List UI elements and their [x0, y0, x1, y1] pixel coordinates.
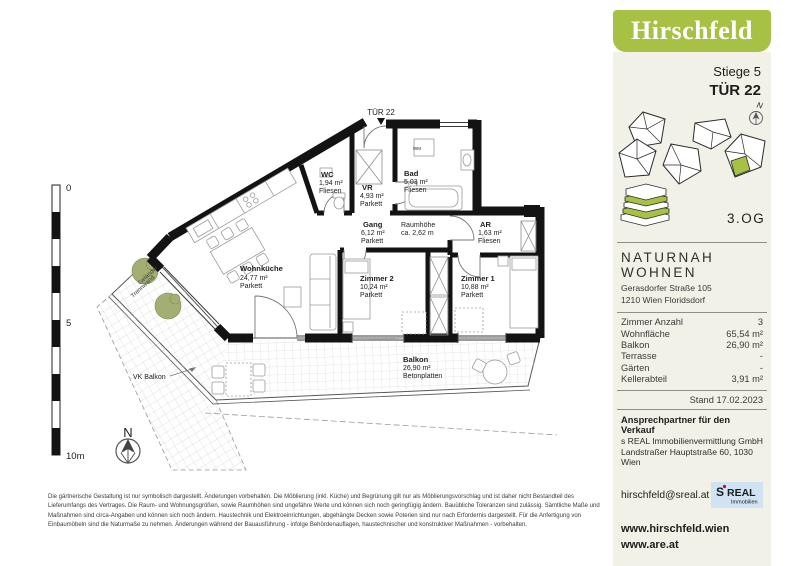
brand-header: Hirschfeld [613, 10, 771, 52]
svg-text:Parkett: Parkett [461, 292, 483, 299]
floor-indicator: 3.OG [727, 211, 765, 226]
north-letter: N [123, 425, 132, 440]
north-compass-icon: N [116, 425, 140, 463]
sreal-logo: S REAL Immobilien [711, 482, 763, 508]
zimmer2-furniture [343, 259, 426, 334]
svg-text:Gang: Gang [363, 220, 383, 229]
room-height-note: Raumhöhe [401, 222, 435, 229]
site-north-icon: N [750, 101, 764, 125]
svg-text:Balkon: Balkon [403, 355, 429, 364]
svg-text:REAL: REAL [727, 487, 756, 499]
project-address-2: 1210 Wien Floridsdorf [621, 295, 763, 307]
svg-text:26,90 m²: 26,90 m² [403, 365, 431, 372]
website-links: www.hirschfeld.wien www.are.at [613, 512, 771, 554]
scale-bar: 0 5 10m [52, 183, 85, 462]
svg-text:Betonplatten: Betonplatten [403, 373, 442, 380]
svg-text:5,03 m²: 5,03 m² [404, 179, 428, 186]
site-building-highlighted [725, 134, 765, 177]
fact-row: Terrasse- [621, 351, 763, 362]
fact-row: Zimmer Anzahl3 [621, 317, 763, 328]
svg-text:10,24 m²: 10,24 m² [360, 284, 388, 291]
contact-address: Landstraßer Hauptstraße 60, 1030 Wien [621, 447, 763, 468]
svg-text:Parkett: Parkett [361, 238, 383, 245]
entrance-arrow-icon [377, 118, 385, 125]
site-building-2 [693, 119, 731, 149]
link-are[interactable]: www.are.at [621, 538, 763, 554]
svg-text:Parkett: Parkett [360, 292, 382, 299]
fact-row: Balkon26,90 m² [621, 340, 763, 351]
entrance-label: TÜR 22 [367, 108, 395, 117]
sreal-s-icon: S [716, 485, 724, 499]
floorplan-sheet: TÜR 22 WC 1,94 m² Fliesen VR 4,93 m² Par… [0, 0, 800, 566]
contact-block: Ansprechpartner für den Verkauf s REAL I… [613, 410, 771, 469]
scale-zero-label: 0 [66, 183, 71, 194]
fact-row: Wohnfläche65,54 m² [621, 329, 763, 340]
building-stack-icon [621, 184, 669, 226]
project-block: NATURNAH WOHNEN Gerasdorfer Straße 105 1… [613, 243, 771, 312]
sidebar-body: Stiege 5 TÜR 22 [613, 52, 771, 566]
svg-text:N: N [756, 101, 764, 111]
contact-heading: Ansprechpartner für den Verkauf [621, 415, 763, 436]
info-sidebar: Hirschfeld Stiege 5 TÜR 22 [613, 10, 771, 552]
svg-text:4,93 m²: 4,93 m² [360, 193, 384, 200]
email-row: hirschfeld@sreal.at S REAL Immobilien [613, 468, 771, 512]
fact-row: Kellerabteil3,91 m² [621, 374, 763, 385]
site-plan: N 3.OG [613, 99, 771, 237]
svg-text:Immobilien: Immobilien [731, 500, 758, 506]
svg-text:Parkett: Parkett [360, 201, 382, 208]
hirschfeld-logo: Hirschfeld [631, 16, 753, 46]
svg-text:6,12 m²: 6,12 m² [361, 230, 385, 237]
fact-row: Gärten- [621, 363, 763, 374]
svg-text:1,94 m²: 1,94 m² [319, 180, 343, 187]
project-address-1: Gerasdorfer Straße 105 [621, 283, 763, 295]
wall-pillar [524, 205, 540, 217]
project-of-row: Ein Projekt der RE AUSTRIAN REAL ESTATE [613, 554, 771, 566]
date-stamp: Stand 17.02.2023 [613, 391, 771, 409]
svg-text:ca. 2,62 m: ca. 2,62 m [401, 230, 434, 237]
project-title: NATURNAH WOHNEN [621, 250, 763, 280]
svg-text:WC: WC [321, 170, 334, 179]
svg-text:1,63 m²: 1,63 m² [478, 230, 502, 237]
svg-text:Fliesen: Fliesen [478, 238, 501, 245]
stiege-label: Stiege 5 [623, 64, 761, 79]
site-building-4 [663, 144, 701, 184]
scale-five-label: 5 [66, 318, 71, 329]
contact-email-link[interactable]: hirschfeld@sreal.at [621, 490, 709, 501]
svg-text:Fliesen: Fliesen [319, 188, 342, 195]
contact-company: s REAL Immobilienvermittlung GmbH [621, 436, 763, 447]
link-hirschfeld[interactable]: www.hirschfeld.wien [621, 522, 763, 538]
facts-table: Zimmer Anzahl3 Wohnfläche65,54 m² Balkon… [613, 313, 771, 389]
svg-text:Zimmer 1: Zimmer 1 [461, 274, 496, 283]
svg-text:AR: AR [480, 220, 491, 229]
floor-plan: TÜR 22 WC 1,94 m² Fliesen VR 4,93 m² Par… [0, 0, 612, 566]
washing-machine-label: WM [413, 146, 421, 151]
svg-text:Parkett: Parkett [240, 283, 262, 290]
svg-text:Wohnküche: Wohnküche [240, 264, 283, 273]
svg-text:24,77 m²: 24,77 m² [240, 275, 268, 282]
svg-text:Fliesen: Fliesen [404, 187, 427, 194]
unit-identifier: Stiege 5 TÜR 22 [613, 52, 771, 99]
svg-text:Bad: Bad [404, 169, 419, 178]
svg-text:VK Balkon: VK Balkon [133, 374, 166, 381]
svg-text:VR: VR [362, 183, 373, 192]
tuer-label: TÜR 22 [623, 82, 761, 99]
livingroom-furniture [284, 254, 336, 330]
svg-text:Zimmer 2: Zimmer 2 [360, 274, 394, 283]
legal-disclaimer: Die gärtnerische Gestaltung ist nur symb… [48, 493, 608, 531]
svg-text:10,88 m²: 10,88 m² [461, 284, 489, 291]
scale-ten-label: 10m [66, 451, 85, 462]
